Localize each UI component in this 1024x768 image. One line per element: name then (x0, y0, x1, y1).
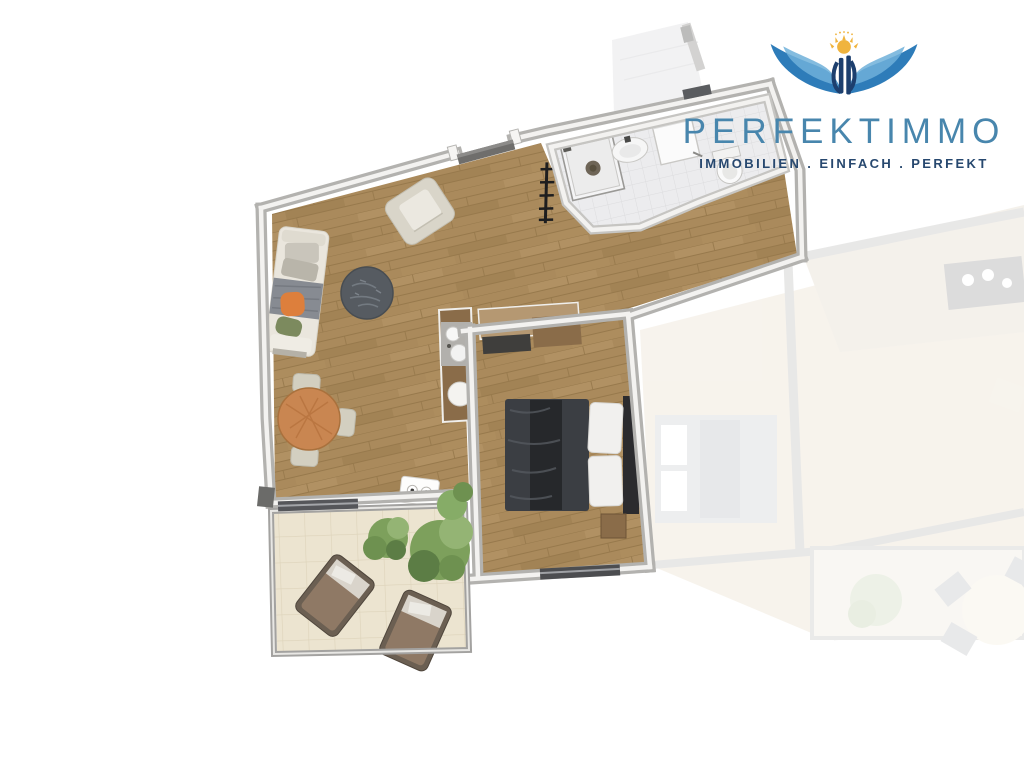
nightstand (601, 514, 626, 538)
eagle-wings-sun-emblem-icon (752, 28, 936, 114)
brand-name: PERFEKTIMMO (676, 114, 1012, 151)
kitchen-plate (451, 345, 468, 362)
ghost-kitchen-counter (944, 256, 1024, 310)
left-wing-icon (771, 44, 842, 94)
coffee-table (341, 267, 393, 319)
bed-pillow (588, 455, 623, 506)
monogram-icon (834, 56, 855, 95)
bed-pillow (588, 402, 624, 454)
real-estate-floorplan-page: PERFEKTIMMO IMMOBILIEN . EINFACH . PERFE… (0, 0, 1024, 768)
right-wing-icon (846, 44, 917, 94)
ghost-terrace (812, 548, 1024, 656)
bed-throw (530, 400, 562, 510)
terrace-step (257, 486, 275, 508)
company-logo: PERFEKTIMMO IMMOBILIEN . EINFACH . PERFE… (676, 28, 1012, 171)
sideboard-open-shelf (482, 334, 531, 354)
brand-tagline: IMMOBILIEN . EINFACH . PERFEKT (676, 156, 1012, 171)
orange-pillow (280, 292, 305, 317)
ghost-bed (655, 415, 777, 523)
sun-crown-icon (830, 31, 859, 54)
